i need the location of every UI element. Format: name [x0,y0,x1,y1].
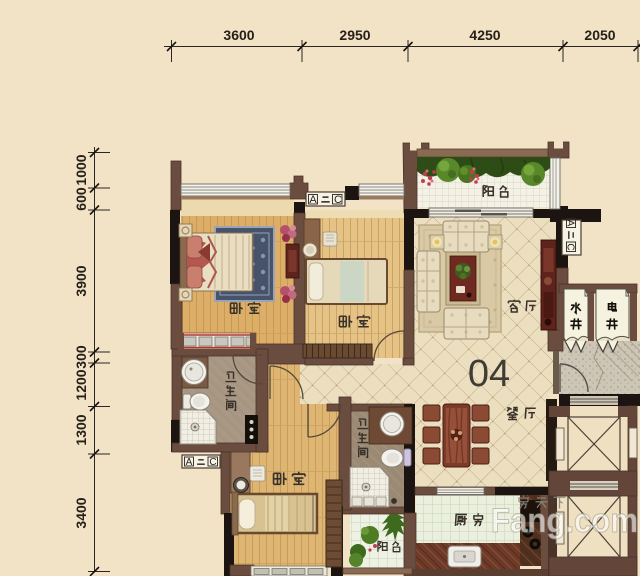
svg-text:3400: 3400 [73,497,89,528]
svg-text:300: 300 [73,345,89,369]
svg-text:4250: 4250 [469,27,500,43]
svg-text:04: 04 [468,353,510,395]
svg-text:1200: 1200 [73,369,89,400]
svg-text:3600: 3600 [223,27,254,43]
svg-text:2050: 2050 [584,27,615,43]
svg-text:1300: 1300 [73,414,89,445]
svg-text:Fang.com: Fang.com [491,502,638,540]
svg-text:2950: 2950 [339,27,370,43]
svg-text:1000: 1000 [73,154,89,185]
svg-text:3900: 3900 [73,265,89,296]
svg-text:600: 600 [73,187,89,211]
